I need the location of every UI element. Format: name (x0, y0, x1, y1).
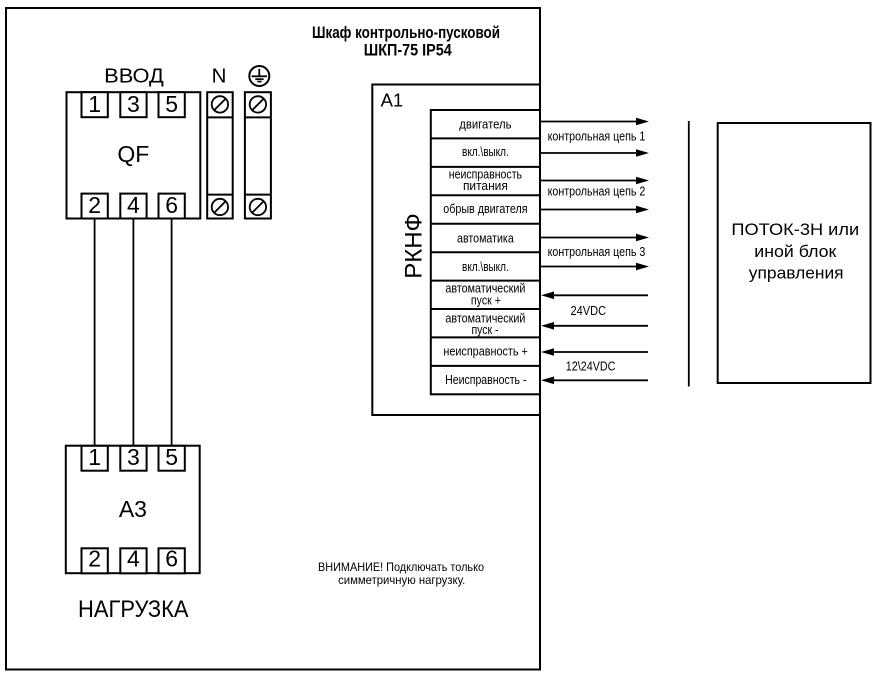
svg-text:неисправность +: неисправность + (443, 345, 528, 359)
svg-text:управления: управления (749, 265, 844, 283)
svg-text:ВВОД: ВВОД (104, 64, 164, 87)
svg-text:А3: А3 (119, 496, 147, 522)
svg-text:обрыв двигателя: обрыв двигателя (443, 202, 527, 216)
svg-text:Неисправность -: Неисправность - (445, 373, 526, 387)
svg-text:двигатель: двигатель (459, 117, 511, 131)
svg-text:ПОТОК-3Н или: ПОТОК-3Н или (731, 221, 859, 239)
svg-text:автоматика: автоматика (457, 231, 514, 245)
svg-text:РКНФ: РКНФ (400, 213, 427, 279)
svg-text:6: 6 (165, 546, 178, 572)
svg-text:5: 5 (165, 91, 178, 117)
svg-text:вкл.\выкл.: вкл.\выкл. (462, 145, 509, 159)
svg-text:ШКП-75 IP54: ШКП-75 IP54 (364, 41, 453, 59)
svg-text:иной блок: иной блок (754, 243, 837, 261)
svg-text:контрольная цепь 1: контрольная цепь 1 (548, 128, 646, 143)
svg-text:4: 4 (127, 192, 140, 218)
svg-text:6: 6 (165, 192, 178, 218)
svg-text:3: 3 (127, 91, 140, 117)
svg-text:1: 1 (88, 91, 101, 117)
svg-text:контрольная цепь 3: контрольная цепь 3 (548, 244, 646, 259)
svg-text:пуск +: пуск + (471, 294, 501, 308)
svg-text:QF: QF (117, 141, 149, 167)
svg-text:1: 1 (88, 444, 101, 470)
svg-text:12\24VDC: 12\24VDC (566, 359, 616, 374)
svg-text:5: 5 (165, 444, 178, 470)
svg-text:питания: питания (463, 179, 508, 193)
svg-text:24VDC: 24VDC (571, 303, 607, 318)
svg-text:4: 4 (127, 546, 140, 572)
svg-text:контрольная цепь 2: контрольная цепь 2 (548, 184, 646, 199)
svg-text:N: N (212, 64, 227, 87)
svg-text:2: 2 (88, 192, 101, 218)
svg-text:НАГРУЗКА: НАГРУЗКА (78, 596, 189, 623)
svg-text:3: 3 (127, 444, 140, 470)
svg-text:A1: A1 (381, 90, 404, 111)
svg-text:симметричную нагрузку.: симметричную нагрузку. (338, 573, 465, 587)
svg-text:вкл.\выкл.: вкл.\выкл. (462, 260, 509, 274)
svg-text:2: 2 (88, 546, 101, 572)
svg-text:Шкаф контрольно-пусковой: Шкаф контрольно-пусковой (312, 24, 500, 42)
svg-text:пуск -: пуск - (472, 323, 499, 337)
